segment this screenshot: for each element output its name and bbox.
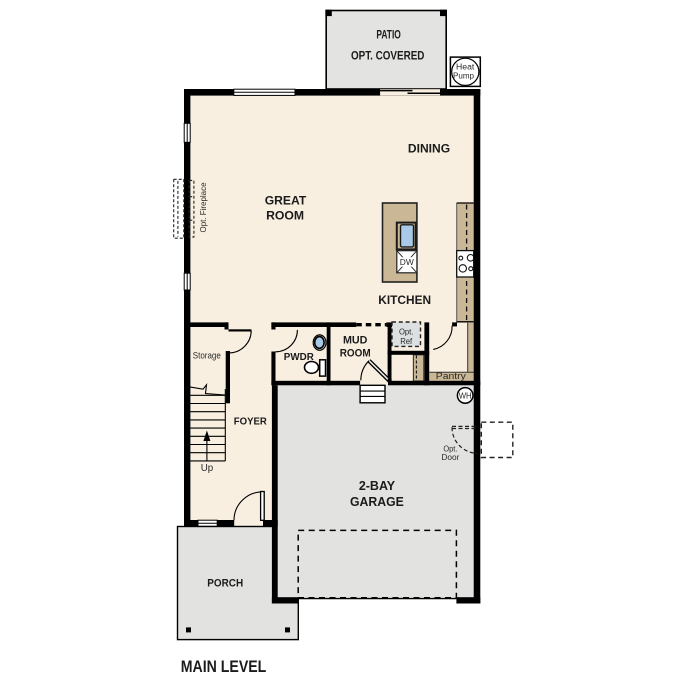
svg-text:2-BAY: 2-BAY — [359, 478, 396, 493]
svg-text:PATIO: PATIO — [376, 27, 401, 41]
svg-text:Pantry: Pantry — [436, 371, 467, 381]
svg-text:MUD: MUD — [343, 334, 368, 346]
svg-text:Up: Up — [201, 463, 214, 474]
svg-text:Ref: Ref — [400, 336, 413, 346]
svg-text:GREAT: GREAT — [265, 196, 307, 208]
svg-text:Door: Door — [441, 452, 459, 462]
svg-text:OPT. COVERED: OPT. COVERED — [351, 50, 425, 62]
svg-text:Storage: Storage — [193, 350, 221, 360]
svg-text:GARAGE: GARAGE — [350, 494, 404, 509]
svg-text:ROOM: ROOM — [340, 348, 371, 360]
svg-text:MAIN LEVEL: MAIN LEVEL — [181, 657, 266, 676]
svg-text:Opt.: Opt. — [399, 327, 414, 337]
svg-text:FOYER: FOYER — [234, 416, 267, 428]
svg-text:DW: DW — [400, 257, 414, 267]
svg-text:PORCH: PORCH — [207, 577, 243, 589]
svg-text:KITCHEN: KITCHEN — [378, 295, 431, 307]
svg-text:WH: WH — [459, 391, 472, 400]
svg-text:ROOM: ROOM — [266, 210, 304, 222]
svg-text:PWDR: PWDR — [284, 351, 314, 363]
svg-text:Opt. Fireplace: Opt. Fireplace — [198, 182, 208, 232]
svg-text:Pump: Pump — [453, 72, 475, 81]
svg-text:Heat: Heat — [456, 62, 475, 71]
svg-text:DINING: DINING — [408, 144, 450, 156]
